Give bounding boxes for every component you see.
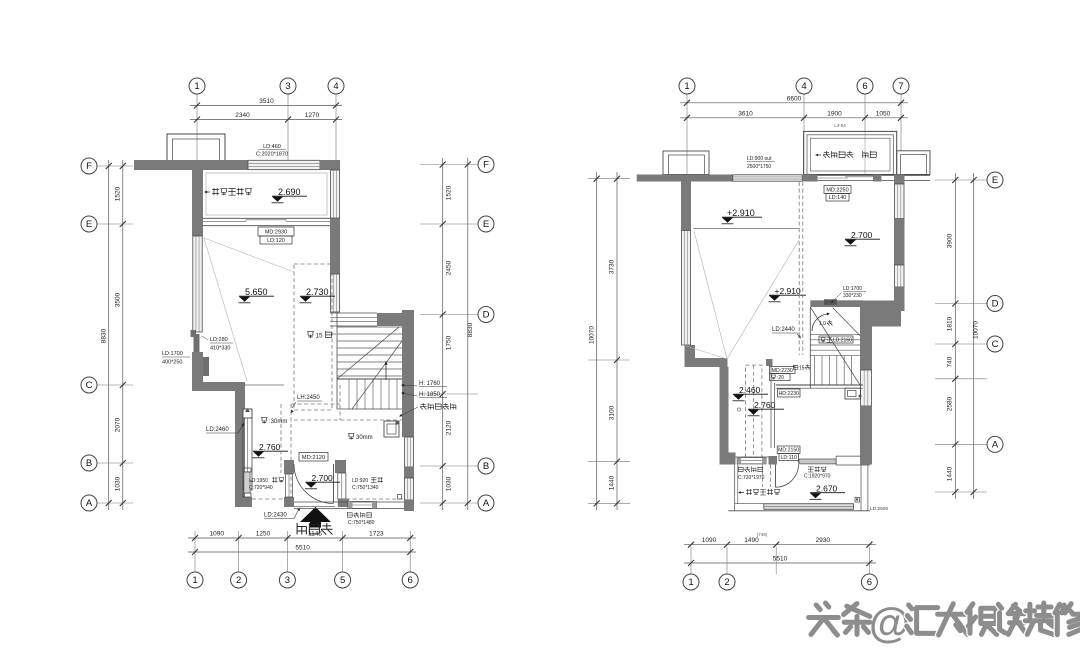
svg-text:LD:110: LD:110 [781, 455, 797, 461]
svg-text:15: 15 [315, 333, 323, 340]
svg-text:F: F [86, 161, 92, 172]
svg-text:1900: 1900 [827, 111, 842, 118]
svg-text:LD:120: LD:120 [267, 238, 285, 244]
svg-text:1440: 1440 [947, 466, 954, 481]
svg-text:1090: 1090 [702, 537, 717, 544]
svg-text:5510: 5510 [773, 556, 788, 563]
svg-text:2.700: 2.700 [312, 473, 334, 483]
svg-text:30mm: 30mm [356, 435, 373, 441]
svg-text:LD:2430: LD:2430 [264, 513, 287, 519]
svg-text:MD:2930: MD:2930 [265, 229, 287, 235]
svg-text:LD:460: LD:460 [263, 144, 281, 150]
svg-text:330*230: 330*230 [843, 293, 862, 299]
svg-text:15: 15 [799, 366, 805, 372]
svg-text:7: 7 [898, 81, 903, 92]
svg-text:3: 3 [285, 575, 290, 586]
svg-text:E: E [992, 175, 998, 186]
svg-text:LD:1700: LD:1700 [843, 286, 862, 292]
svg-text:3100: 3100 [609, 405, 616, 420]
svg-text:D: D [483, 310, 490, 321]
svg-text:B: B [86, 458, 92, 469]
svg-text:LD:2160: LD:2160 [833, 338, 852, 344]
svg-text:8830: 8830 [101, 328, 108, 343]
svg-text:A: A [483, 498, 490, 509]
svg-text:LD:900 out: LD:900 out [747, 156, 772, 162]
svg-text:@: @ [869, 599, 910, 646]
svg-text:F: F [483, 160, 489, 171]
svg-text:E: E [483, 219, 489, 230]
svg-text:E: E [86, 219, 92, 230]
svg-text:6: 6 [862, 81, 867, 92]
svg-text:5.650: 5.650 [245, 287, 268, 297]
svg-text:2070: 2070 [115, 417, 122, 432]
svg-text:2: 2 [724, 577, 729, 588]
svg-text:1: 1 [688, 577, 693, 588]
svg-text:+2.910: +2.910 [727, 208, 755, 218]
svg-text:4: 4 [801, 81, 806, 92]
svg-text:1750: 1750 [446, 335, 453, 350]
svg-text:A: A [992, 440, 999, 451]
svg-text:C:750*1340: C:750*1340 [352, 485, 379, 491]
svg-text:410*330: 410*330 [210, 346, 231, 352]
svg-text:MD:2250: MD:2250 [826, 187, 848, 193]
svg-text:HD:2230: HD:2230 [779, 391, 800, 397]
svg-text:C:720*940: C:720*940 [249, 485, 273, 491]
svg-text:400*250: 400*250 [162, 360, 183, 366]
svg-text:2.730: 2.730 [306, 287, 329, 297]
svg-text:1810: 1810 [947, 316, 954, 331]
svg-text:MD:2230: MD:2230 [772, 368, 793, 374]
svg-text:1270: 1270 [305, 112, 320, 119]
svg-text:LD:280: LD:280 [210, 337, 228, 343]
svg-text:8830: 8830 [467, 322, 474, 337]
svg-text:3500: 3500 [115, 292, 122, 307]
svg-text:3900: 3900 [947, 233, 954, 248]
svg-text:3: 3 [285, 81, 290, 92]
svg-text:2450: 2450 [446, 260, 453, 275]
svg-text:3610: 3610 [738, 111, 753, 118]
svg-text:2.760: 2.760 [754, 400, 776, 410]
svg-text:2580: 2580 [947, 396, 954, 411]
svg-text:6: 6 [867, 577, 872, 588]
svg-text:2.690: 2.690 [278, 187, 301, 197]
svg-text:4: 4 [333, 81, 338, 92]
svg-text:C:720*1970: C:720*1970 [738, 475, 765, 481]
svg-text:3510: 3510 [259, 98, 274, 105]
svg-text:3730: 3730 [609, 259, 616, 274]
svg-text:6: 6 [408, 575, 413, 586]
svg-text:LD:2460: LD:2460 [206, 427, 229, 433]
svg-text:1030: 1030 [446, 476, 453, 491]
svg-text:LD:1700: LD:1700 [162, 351, 183, 357]
svg-text:1050: 1050 [876, 111, 891, 118]
svg-text:2.460: 2.460 [739, 385, 761, 395]
svg-text:MD:2150: MD:2150 [778, 448, 799, 454]
svg-text:740: 740 [947, 356, 954, 367]
svg-text:10070: 10070 [589, 326, 596, 344]
svg-text:A: A [86, 498, 93, 509]
svg-text:1250: 1250 [256, 531, 271, 538]
svg-text:6600: 6600 [787, 96, 802, 103]
svg-text:10070: 10070 [973, 321, 980, 339]
svg-text:1030: 1030 [115, 476, 122, 491]
svg-text:MD:2120: MD:2120 [302, 455, 326, 461]
svg-text:LD:1950: LD:1950 [249, 478, 268, 484]
svg-text:H: 1850: H: 1850 [419, 392, 441, 398]
svg-text:1440: 1440 [609, 475, 616, 490]
svg-text:D: D [992, 299, 999, 310]
svg-text::30mm: :30mm [269, 419, 287, 425]
svg-text:C:750*1480: C:750*1480 [348, 520, 375, 526]
svg-text:1: 1 [192, 575, 197, 586]
svg-text:+2.910: +2.910 [775, 286, 802, 296]
svg-text:1723: 1723 [369, 531, 384, 538]
svg-text:1520: 1520 [115, 186, 122, 201]
svg-text:1: 1 [194, 81, 199, 92]
svg-text:1.0: 1.0 [819, 321, 826, 327]
svg-text:1520: 1520 [446, 185, 453, 200]
svg-text:1: 1 [684, 81, 689, 92]
svg-text:2500*1750: 2500*1750 [747, 164, 771, 170]
svg-text:C: C [992, 339, 999, 350]
svg-text:C:2020*1870: C:2020*1870 [256, 152, 288, 158]
svg-text:LH:2450: LH:2450 [297, 395, 320, 401]
svg-text:5: 5 [340, 575, 345, 586]
svg-text:2340: 2340 [235, 112, 250, 119]
svg-text:LD:2440: LD:2440 [772, 327, 795, 333]
svg-text:2120: 2120 [446, 420, 453, 435]
svg-text::20: :20 [777, 375, 784, 381]
svg-text:C:1920*970: C:1920*970 [804, 474, 831, 480]
svg-text:LD:140: LD:140 [829, 195, 847, 201]
svg-text:2: 2 [236, 575, 241, 586]
svg-text:2930: 2930 [816, 537, 831, 544]
svg-text:B: B [483, 461, 489, 472]
svg-text:C: C [86, 380, 93, 391]
svg-text:LD:920: LD:920 [352, 478, 368, 484]
svg-text:H: 1760: H: 1760 [419, 381, 441, 387]
svg-text:2.670: 2.670 [816, 484, 838, 494]
svg-text:(749): (749) [757, 532, 768, 537]
svg-text:1090: 1090 [210, 531, 225, 538]
svg-text:LD:2500: LD:2500 [870, 506, 888, 512]
svg-text:L3-04: L3-04 [834, 123, 846, 128]
svg-text:5510: 5510 [295, 545, 310, 552]
svg-text:1490: 1490 [744, 537, 759, 544]
svg-text:2.700: 2.700 [851, 230, 873, 240]
svg-text:2.760: 2.760 [259, 442, 281, 452]
